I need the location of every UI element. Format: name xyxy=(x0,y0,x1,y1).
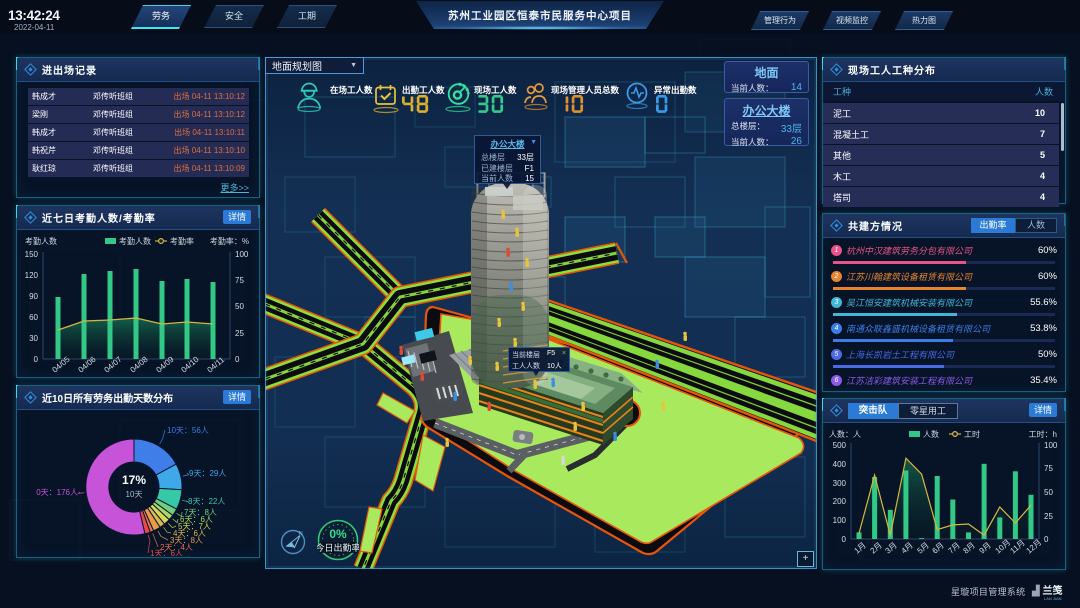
svg-text:300: 300 xyxy=(833,479,847,488)
svg-text:4月: 4月 xyxy=(900,541,915,556)
svg-text:0: 0 xyxy=(1044,535,1049,544)
svg-text:8天：22人: 8天：22人 xyxy=(188,497,225,506)
svg-text:考勤人数: 考勤人数 xyxy=(25,236,57,246)
svg-text:考勤率: 考勤率 xyxy=(170,236,194,246)
svg-text:9月: 9月 xyxy=(978,541,993,556)
svg-text:11月: 11月 xyxy=(1009,538,1027,555)
svg-text:2月: 2月 xyxy=(869,541,884,556)
svg-text:400: 400 xyxy=(833,460,847,469)
svg-text:75: 75 xyxy=(1044,464,1053,473)
svg-text:工时：h: 工时：h xyxy=(1029,429,1057,439)
svg-text:500: 500 xyxy=(833,441,847,450)
svg-text:50: 50 xyxy=(1044,488,1053,497)
svg-text:9天：29人: 9天：29人 xyxy=(189,469,226,478)
svg-text:0天：176人: 0天：176人 xyxy=(36,488,78,497)
svg-text:1月: 1月 xyxy=(853,541,868,556)
svg-text:120: 120 xyxy=(25,271,39,280)
svg-text:考勤人数: 考勤人数 xyxy=(119,236,151,246)
svg-text:今日出勤率: 今日出勤率 xyxy=(317,542,359,553)
svg-text:5月: 5月 xyxy=(916,541,931,556)
svg-text:150: 150 xyxy=(25,250,39,259)
svg-text:0%: 0% xyxy=(329,527,347,541)
svg-text:人数：人: 人数：人 xyxy=(829,429,861,439)
svg-text:考勤率：%: 考勤率：% xyxy=(210,236,249,246)
svg-text:8月: 8月 xyxy=(962,541,977,556)
svg-text:0: 0 xyxy=(842,535,847,544)
svg-text:100: 100 xyxy=(833,516,847,525)
svg-text:工时: 工时 xyxy=(964,429,980,439)
svg-text:30: 30 xyxy=(29,334,38,343)
svg-text:25: 25 xyxy=(1044,512,1053,521)
svg-text:100: 100 xyxy=(235,250,249,259)
svg-text:12月: 12月 xyxy=(1025,538,1044,556)
svg-text:3月: 3月 xyxy=(884,541,899,556)
svg-text:6月: 6月 xyxy=(931,541,946,556)
svg-text:N: N xyxy=(299,531,303,537)
svg-text:10天: 10天 xyxy=(126,490,143,499)
svg-text:10天：56人: 10天：56人 xyxy=(167,426,209,435)
svg-text:0: 0 xyxy=(235,355,240,364)
svg-text:75: 75 xyxy=(235,276,244,285)
svg-text:人数: 人数 xyxy=(923,429,939,439)
svg-text:0: 0 xyxy=(34,355,39,364)
svg-text:60: 60 xyxy=(29,313,38,322)
svg-text:50: 50 xyxy=(235,302,244,311)
svg-text:25: 25 xyxy=(235,329,244,338)
svg-text:90: 90 xyxy=(29,292,38,301)
svg-text:17%: 17% xyxy=(122,473,146,487)
svg-text:7月: 7月 xyxy=(947,541,962,556)
svg-text:200: 200 xyxy=(833,497,847,506)
svg-text:1天：6人: 1天：6人 xyxy=(150,549,183,556)
svg-text:100: 100 xyxy=(1044,441,1058,450)
